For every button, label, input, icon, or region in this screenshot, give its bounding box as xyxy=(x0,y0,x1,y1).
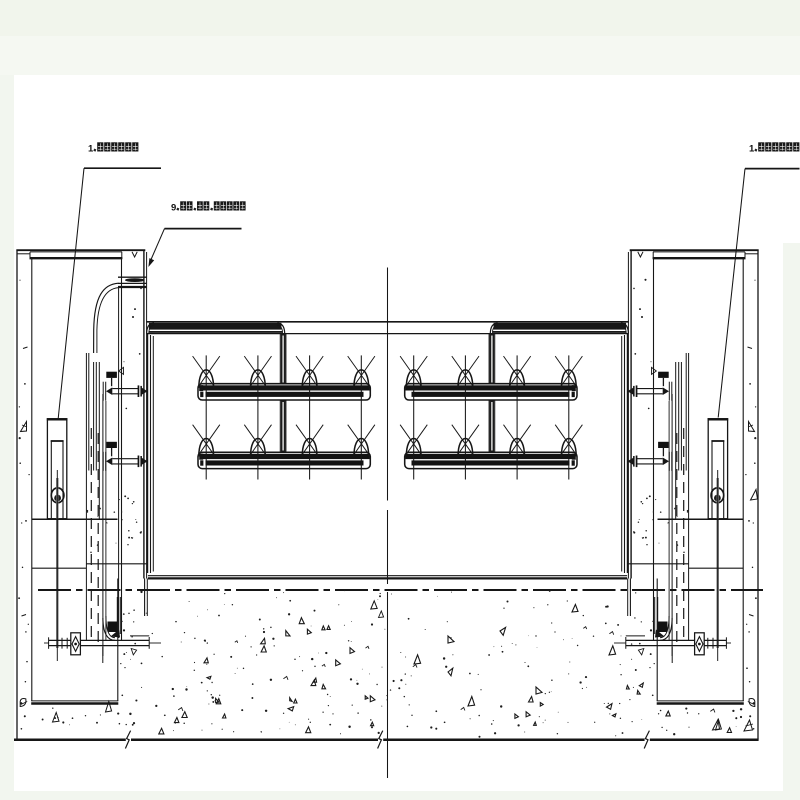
svg-text:9: 9 xyxy=(171,203,176,214)
svg-text:1: 1 xyxy=(749,144,755,155)
svg-text:1: 1 xyxy=(88,144,94,155)
